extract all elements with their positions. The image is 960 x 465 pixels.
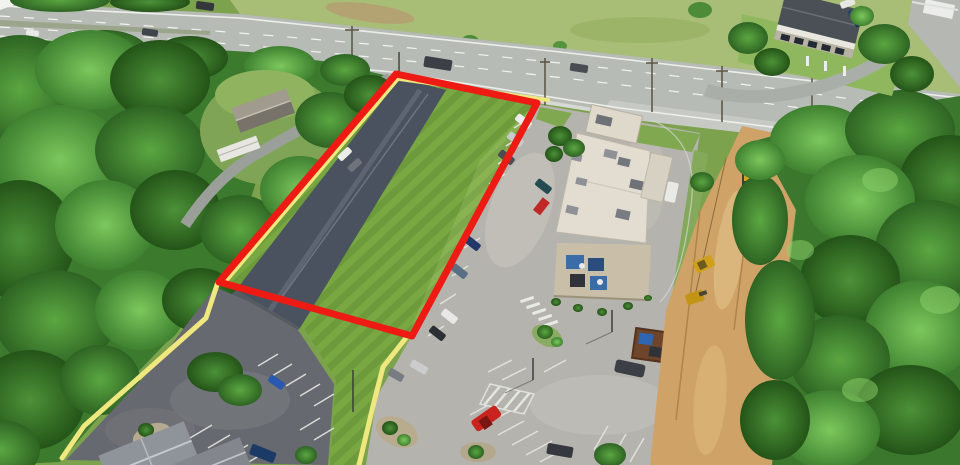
aerial-photo-canvas: [0, 0, 960, 465]
dumpster-enclosure: [632, 328, 666, 362]
building-front: [554, 243, 651, 300]
aerial-photo: [0, 0, 960, 465]
tree-canopy-right: [732, 90, 960, 465]
